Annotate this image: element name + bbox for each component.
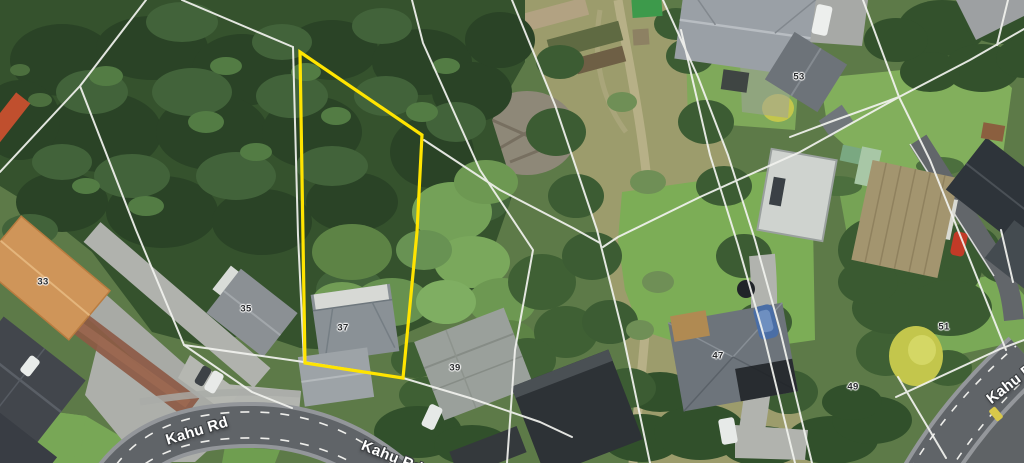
parcel-number-label: 53 [793, 72, 804, 83]
parcel-number-label: 35 [240, 304, 251, 315]
parcel-number-label: 51 [938, 322, 949, 333]
green-shed [631, 0, 662, 18]
house-roof-white [757, 149, 836, 241]
parcel-number-label: 49 [847, 382, 858, 393]
map-canvas[interactable]: 33 35 37 39 47 49 51 53 Kahu Rd Kahu Rd … [0, 0, 1024, 463]
parcel-number-label: 47 [712, 351, 723, 362]
parcel-number-label: 39 [449, 363, 460, 374]
parcel-number-label: 33 [37, 277, 48, 288]
aerial-imagery [0, 0, 1024, 463]
parcel-number-label: 37 [337, 323, 348, 334]
